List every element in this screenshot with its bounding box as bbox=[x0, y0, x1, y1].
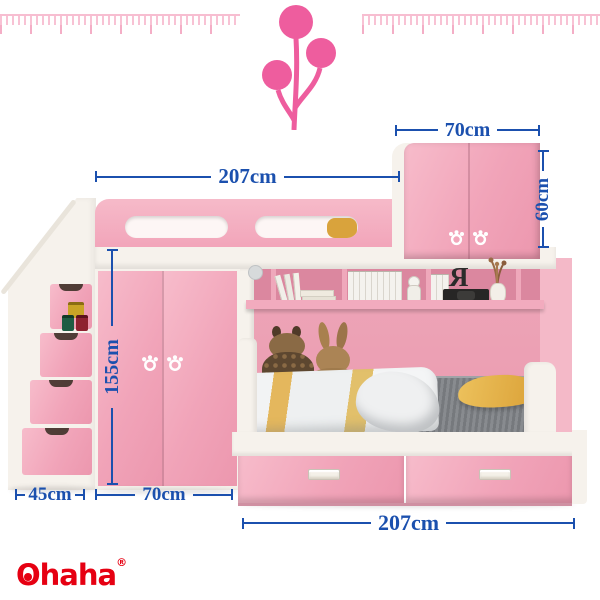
paw-handle-icon bbox=[472, 229, 489, 246]
bed-frame-band bbox=[232, 432, 578, 456]
ruler-strip-right-icon bbox=[362, 14, 600, 34]
product-dimension-diagram: R bbox=[0, 0, 600, 600]
shelf-divider bbox=[342, 269, 347, 302]
stair-drawer bbox=[22, 428, 92, 475]
dim-line bbox=[542, 227, 544, 246]
brand-initial: O bbox=[16, 558, 40, 592]
brand-o-dot-icon bbox=[24, 573, 32, 581]
brand-trademark: ® bbox=[116, 556, 126, 569]
camera-lens bbox=[457, 291, 475, 300]
dimension-cabinet-height: 60cm bbox=[531, 150, 555, 248]
drawer-notch-handle-icon bbox=[49, 380, 73, 387]
dim-line bbox=[446, 522, 573, 524]
dimension-label: 45cm bbox=[25, 485, 74, 504]
paw-handle-icon bbox=[448, 229, 465, 246]
dimension-wardrobe-height: 155cm bbox=[100, 249, 124, 485]
brand-logo: Ohaha® bbox=[16, 558, 126, 592]
dim-line bbox=[75, 494, 83, 496]
book-spine bbox=[293, 273, 302, 302]
drawer-handle bbox=[479, 469, 511, 480]
dimension-label: 70cm bbox=[135, 485, 192, 504]
dimension-upper-bed-width: 207cm bbox=[95, 166, 400, 187]
bed-right-side-post bbox=[572, 430, 587, 504]
underbed-drawer bbox=[406, 456, 572, 503]
dimension-lower-bed-width: 207cm bbox=[242, 512, 575, 534]
pillow-behind-rail bbox=[327, 218, 357, 238]
bed-right-armrest bbox=[524, 362, 556, 434]
dim-cap bbox=[573, 518, 575, 529]
stair-drawer bbox=[30, 380, 92, 424]
guardrail-cutout bbox=[255, 216, 358, 238]
dim-line bbox=[542, 152, 544, 171]
round-mirror bbox=[248, 265, 263, 280]
dim-line bbox=[17, 494, 25, 496]
shelf-board bbox=[246, 300, 544, 309]
dimension-label: 207cm bbox=[211, 166, 283, 187]
guardrail-cutout bbox=[125, 216, 228, 238]
dim-cap bbox=[538, 246, 549, 248]
paw-handle-icon bbox=[166, 354, 184, 372]
dim-line bbox=[97, 176, 211, 178]
dim-cap bbox=[398, 171, 400, 182]
underbed-drawers bbox=[238, 456, 572, 506]
drawer-handle bbox=[308, 469, 340, 480]
dim-line bbox=[497, 129, 538, 131]
shelf-divider bbox=[271, 269, 276, 302]
book-row bbox=[348, 271, 402, 303]
dimension-wardrobe-width: 70cm bbox=[95, 485, 233, 504]
brand-rest: haha bbox=[40, 558, 116, 592]
overhead-cabinet bbox=[404, 143, 540, 259]
paw-handle-icon bbox=[141, 354, 159, 372]
dim-line bbox=[193, 494, 231, 496]
dimension-label: 207cm bbox=[371, 512, 446, 534]
dim-cap bbox=[538, 125, 540, 136]
dim-line bbox=[111, 408, 113, 483]
drawer-notch-handle-icon bbox=[45, 428, 69, 435]
dimension-label: 60cm bbox=[534, 177, 553, 220]
bed-left-post bbox=[238, 338, 257, 434]
dim-line bbox=[397, 129, 438, 131]
dimension-stairs-depth: 45cm bbox=[15, 485, 85, 504]
ruler-strip-left-icon bbox=[0, 14, 240, 34]
underbed-drawer bbox=[238, 456, 404, 503]
drawer-notch-handle-icon bbox=[54, 333, 78, 340]
leaning-books bbox=[278, 273, 338, 302]
dim-cap bbox=[231, 489, 233, 500]
dim-line bbox=[97, 494, 135, 496]
dim-line bbox=[111, 251, 113, 326]
dim-line bbox=[244, 522, 371, 524]
dimension-label: 70cm bbox=[438, 120, 498, 140]
dimension-cabinet-width: 70cm bbox=[395, 120, 540, 140]
shelf-divider bbox=[516, 269, 521, 302]
dim-cap bbox=[83, 489, 85, 500]
cabinet-door-split bbox=[468, 143, 470, 259]
balloon-branch-icon bbox=[258, 2, 348, 130]
upper-bunk-guardrail bbox=[95, 199, 400, 247]
drawer-notch-handle-icon bbox=[59, 284, 83, 291]
toy-block-green bbox=[62, 315, 74, 331]
wardrobe-door-right bbox=[164, 271, 237, 486]
dim-line bbox=[284, 176, 398, 178]
dimension-label: 155cm bbox=[102, 339, 122, 395]
astronaut-figurine bbox=[406, 276, 420, 302]
